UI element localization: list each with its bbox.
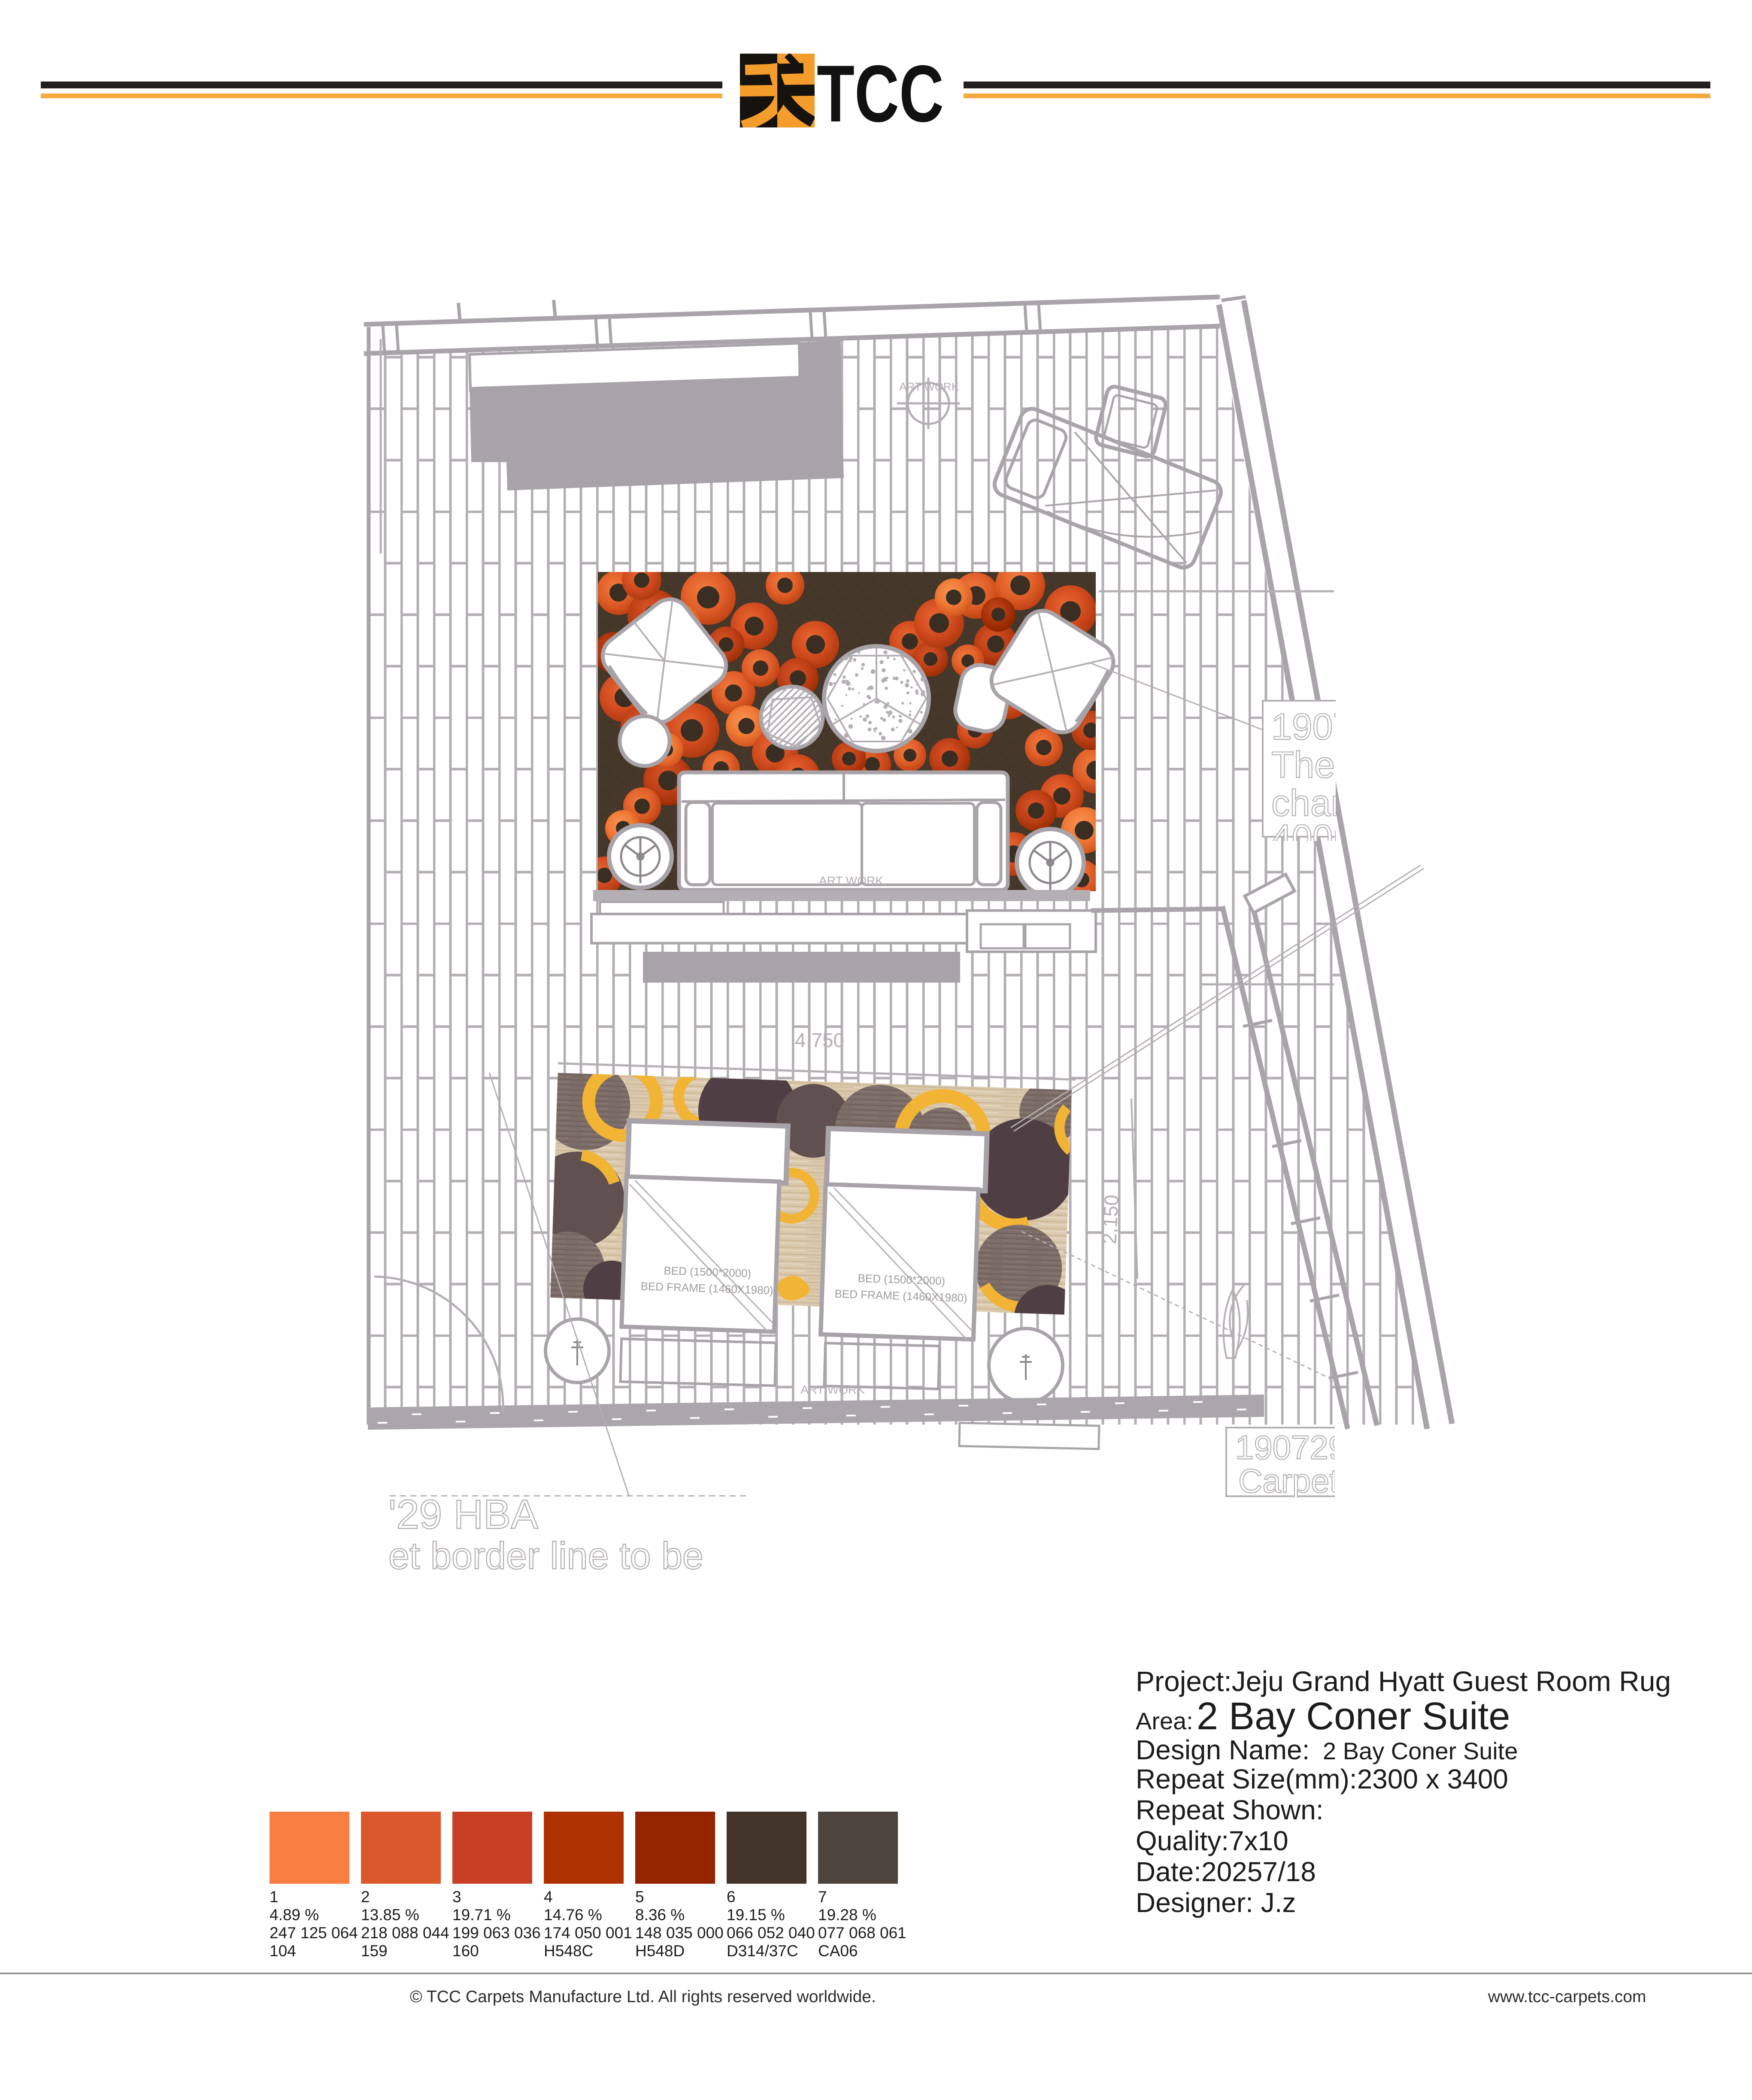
svg-text:5: 5 [635, 1888, 644, 1906]
svg-text:Carpet b: Carpet b [1238, 1462, 1367, 1500]
svg-text:1: 1 [270, 1888, 279, 1906]
svg-text:H548C: H548C [544, 1942, 593, 1960]
svg-text:13.85 %: 13.85 % [361, 1906, 419, 1924]
svg-text:Area:: Area: [1136, 1707, 1193, 1734]
svg-text:Design Name:: Design Name: [1136, 1734, 1310, 1765]
svg-text:160: 160 [452, 1942, 479, 1960]
svg-text:19072: 19072 [1271, 706, 1374, 747]
svg-text:3: 3 [452, 1888, 461, 1906]
svg-text:199 063 036: 199 063 036 [452, 1924, 541, 1942]
svg-text:Repeat Size(mm):2300 x 3400: Repeat Size(mm):2300 x 3400 [1136, 1764, 1508, 1794]
svg-text:077 068 061: 077 068 061 [818, 1924, 906, 1942]
svg-text:247 125 064: 247 125 064 [270, 1924, 358, 1942]
svg-text:19.15 %: 19.15 % [727, 1906, 785, 1924]
svg-text:CA06: CA06 [818, 1942, 858, 1960]
svg-text:The d: The d [1271, 744, 1366, 786]
svg-text:TCC: TCC [817, 48, 944, 139]
svg-text:Repeat Shown:: Repeat Shown: [1136, 1794, 1324, 1825]
svg-text:Date:20257/18: Date:20257/18 [1136, 1856, 1316, 1887]
svg-text:6: 6 [727, 1888, 736, 1906]
svg-text:Designer: J.z: Designer: J.z [1136, 1887, 1296, 1918]
svg-text:190729 [: 190729 [ [1235, 1428, 1366, 1466]
svg-text:et border line to be: et border line to be [388, 1534, 703, 1577]
svg-text:2,150: 2,150 [1098, 1194, 1123, 1245]
svg-text:ART WORK: ART WORK [899, 380, 959, 393]
svg-text:'29 HBA: '29 HBA [388, 1492, 538, 1537]
svg-text:www.tcc-carpets.com: www.tcc-carpets.com [1488, 1988, 1646, 2006]
svg-text:19.71 %: 19.71 % [452, 1906, 511, 1924]
svg-text:4: 4 [544, 1888, 553, 1906]
svg-text:148 035 000: 148 035 000 [635, 1924, 724, 1942]
svg-text:4,750: 4,750 [795, 1029, 844, 1051]
svg-text:159: 159 [361, 1942, 388, 1960]
svg-text:© TCC Carpets Manufacture Ltd.: © TCC Carpets Manufacture Ltd. All right… [410, 1988, 876, 2006]
svg-text:2 Bay Coner Suite: 2 Bay Coner Suite [1197, 1695, 1510, 1738]
svg-text:218 088 044: 218 088 044 [361, 1924, 449, 1942]
svg-text:D314/37C: D314/37C [727, 1942, 798, 1960]
svg-text:H548D: H548D [635, 1942, 685, 1960]
svg-text:066 052 040: 066 052 040 [727, 1924, 815, 1942]
svg-text:4.89 %: 4.89 % [270, 1906, 319, 1924]
svg-text:Project:Jeju Grand Hyatt Guest: Project:Jeju Grand Hyatt Guest Room Rug [1136, 1665, 1671, 1697]
svg-text:2: 2 [361, 1888, 370, 1906]
svg-text:174 050 001: 174 050 001 [544, 1924, 632, 1942]
svg-text:104: 104 [270, 1942, 296, 1960]
svg-text:8.36 %: 8.36 % [635, 1906, 685, 1924]
svg-text:19.28 %: 19.28 % [818, 1906, 876, 1924]
svg-text:Quality:7x10: Quality:7x10 [1136, 1825, 1288, 1856]
svg-text:ART WORK: ART WORK [800, 1383, 865, 1396]
svg-text:14.76 %: 14.76 % [544, 1906, 602, 1924]
svg-text:7: 7 [818, 1888, 827, 1906]
svg-text:ART WORK: ART WORK [819, 874, 883, 887]
svg-text:2 Bay Coner Suite: 2 Bay Coner Suite [1323, 1737, 1518, 1764]
